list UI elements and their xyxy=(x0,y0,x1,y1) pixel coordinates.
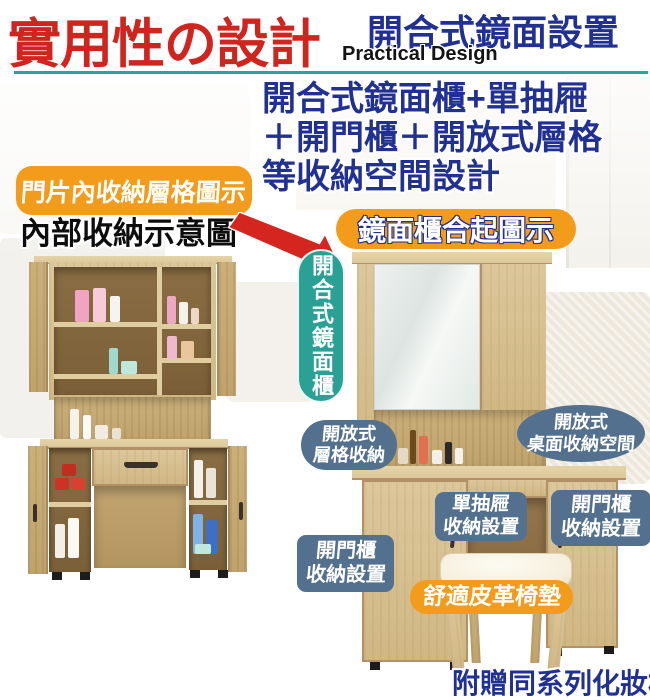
cosmetic-item xyxy=(181,341,194,359)
cosmetic-item xyxy=(110,296,120,322)
headline-line3: 等收納空間設計 xyxy=(262,158,650,197)
cosmetic-item xyxy=(455,448,463,464)
callout-drawer: 單抽屜 收納設置 xyxy=(435,492,527,541)
cosmetic-item xyxy=(195,544,211,554)
callout-door-cabinet-left-line2: 收納設置 xyxy=(304,564,386,588)
cosmetic-item xyxy=(194,460,203,498)
dresser-shelf xyxy=(49,502,91,507)
cosmetic-item xyxy=(167,336,177,359)
furniture-foot xyxy=(80,572,90,580)
footer-note: 附贈同系列化妝椅 xyxy=(452,662,650,700)
right-figure-badge-label: 鏡面櫃合起圖示 xyxy=(358,209,554,249)
callout-door-cabinet-right-line1: 開門櫃 xyxy=(570,494,632,518)
headline: 開合式鏡面櫃+單抽屜 ＋開門櫃＋開放式層格 等收納空間設計 xyxy=(262,80,650,197)
callout-desktop-space-line2: 桌面收納空間 xyxy=(526,434,636,455)
callout-door-cabinet-right-line2: 收納設置 xyxy=(560,518,642,542)
vanity-top-board xyxy=(352,252,552,264)
poster: 實用性の設計 開合式鏡面設置 Practical Design 開合式鏡面櫃+單… xyxy=(0,0,650,700)
headline-line2: ＋開門櫃＋開放式層格 xyxy=(262,119,650,158)
left-figure-badge-label: 門片內收納層格圖示 xyxy=(20,173,248,209)
vanity-mirror-door-panel xyxy=(480,264,546,410)
dresser-left-cabinet-interior xyxy=(49,448,91,572)
right-figure-badge: 鏡面櫃合起圖示 xyxy=(336,209,576,249)
dresser-open-door-left xyxy=(29,262,48,392)
cosmetic-item xyxy=(410,430,416,464)
door-handle xyxy=(33,504,37,522)
furniture-foot xyxy=(218,570,228,578)
open-dresser-illustration xyxy=(28,256,242,584)
cosmetic-item xyxy=(93,288,106,322)
cosmetic-item xyxy=(445,442,452,464)
vanity-illustration xyxy=(352,250,632,680)
callout-open-shelf: 開放式 層格收納 xyxy=(301,420,397,470)
callout-cushion-label: 舒適皮革椅墊 xyxy=(421,583,561,610)
cosmetic-item xyxy=(70,409,79,439)
callout-door-cabinet-left-line1: 開門櫃 xyxy=(314,540,376,564)
cosmetic-item xyxy=(75,290,89,322)
cosmetic-item xyxy=(121,361,137,374)
cosmetic-item xyxy=(71,478,85,490)
headline-line1: 開合式鏡面櫃+單抽屜 xyxy=(262,80,650,119)
callout-desktop-space-line1: 開放式 xyxy=(553,412,609,433)
callout-open-shelf-line2: 層格收納 xyxy=(312,445,386,466)
cosmetic-item xyxy=(55,524,65,558)
dresser-lower-open-door-left xyxy=(28,446,48,574)
cosmetic-item xyxy=(68,518,79,558)
cosmetic-item xyxy=(55,478,69,490)
callout-drawer-line1: 單抽屜 xyxy=(452,494,511,516)
dresser-hutch xyxy=(49,262,216,400)
dresser-shelf xyxy=(54,374,159,379)
page-title: 實用性の設計 xyxy=(8,2,320,78)
furniture-foot xyxy=(52,572,62,580)
cosmetic-item xyxy=(62,464,76,476)
vanity-mirror xyxy=(374,264,480,410)
callout-desktop-space: 開放式 桌面收納空間 xyxy=(517,405,645,462)
furniture-foot xyxy=(604,646,614,654)
teal-divider xyxy=(14,71,648,74)
drawer-handle xyxy=(124,462,158,468)
cosmetic-item xyxy=(95,425,108,439)
callout-cushion: 舒適皮革椅墊 xyxy=(410,580,573,614)
cosmetic-item xyxy=(419,436,428,464)
cosmetic-item xyxy=(191,308,199,324)
dresser-shelf xyxy=(189,500,227,505)
cosmetic-item xyxy=(112,428,121,439)
cosmetic-item xyxy=(179,302,188,324)
cosmetic-item xyxy=(167,296,176,324)
cosmetic-item xyxy=(206,468,216,498)
dresser-drawer xyxy=(92,448,188,486)
dresser-knee-space xyxy=(94,486,186,568)
cosmetic-item xyxy=(83,415,91,439)
left-figure-caption: 內部收納示意圖 xyxy=(20,208,237,253)
mirror-cabinet-vertical-badge: 開合式鏡面櫃 xyxy=(297,249,345,403)
dresser-open-door-right xyxy=(217,262,236,396)
cosmetic-item xyxy=(109,348,118,374)
vanity-tabletop xyxy=(352,466,626,480)
callout-drawer-line2: 收納設置 xyxy=(442,517,520,539)
callout-door-cabinet-left: 開門櫃 收納設置 xyxy=(297,535,394,592)
furniture-foot xyxy=(190,570,200,578)
callout-door-cabinet-right: 開門櫃 收納設置 xyxy=(551,490,650,546)
dresser-right-cabinet-interior xyxy=(189,448,227,570)
furniture-foot xyxy=(370,662,380,670)
mirror-cabinet-vertical-label: 開合式鏡面櫃 xyxy=(305,254,337,398)
dresser-divider xyxy=(157,267,162,395)
dresser-lower-open-door-right xyxy=(228,446,247,572)
dresser-counter-recess xyxy=(54,397,211,439)
callout-open-shelf-line1: 開放式 xyxy=(321,424,377,445)
feature-subtitle-en: Practical Design xyxy=(342,43,498,66)
cosmetic-item xyxy=(432,450,442,464)
door-handle xyxy=(239,502,243,520)
cosmetic-item xyxy=(398,448,408,464)
dresser-shelf xyxy=(162,324,211,329)
dresser-shelf xyxy=(54,322,159,327)
